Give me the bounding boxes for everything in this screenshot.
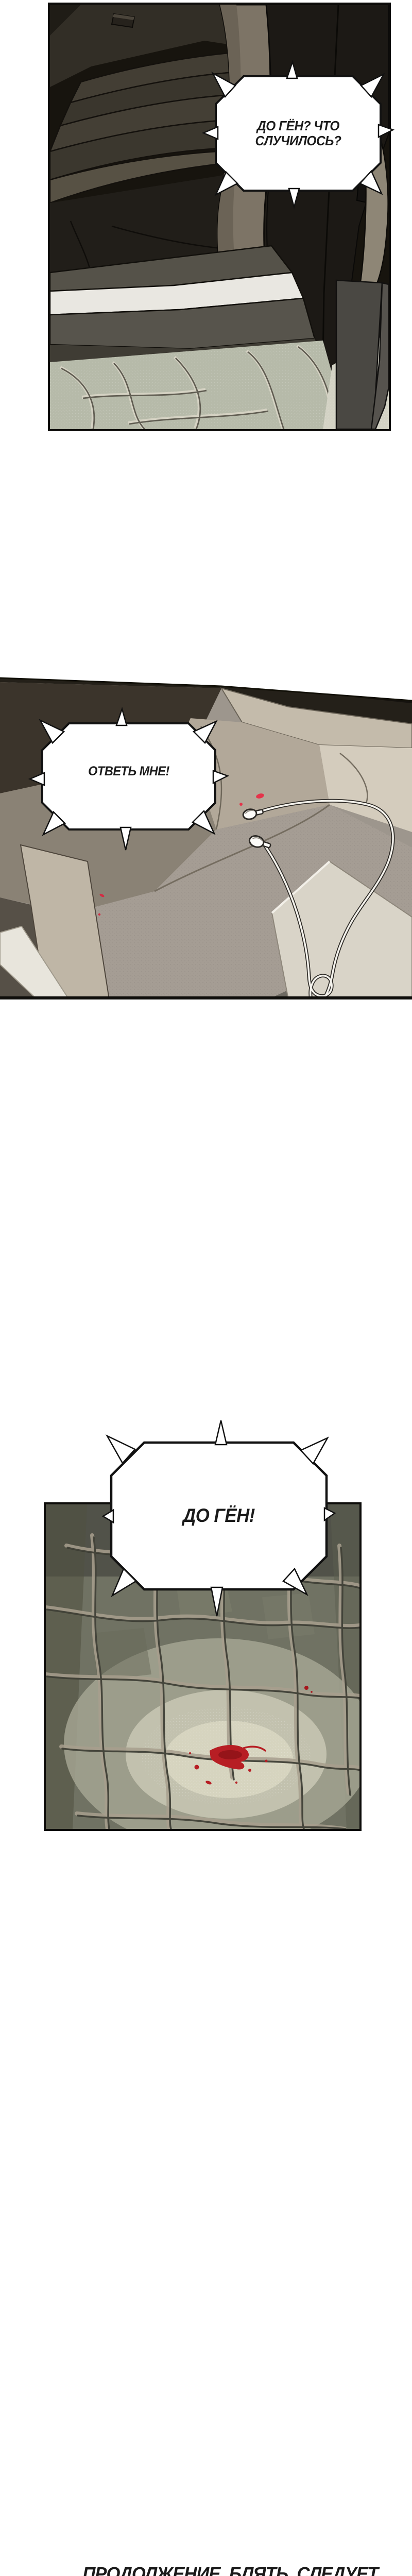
webtoon-page: ДО ГЁН? ЧТО СЛУЧИЛОСЬ?	[0, 0, 412, 2576]
speech-bubble-2-text: ОТВЕТЬ МНЕ!	[47, 720, 210, 823]
speech-line: ДО ГЁН? ЧТО	[257, 118, 339, 133]
speech-bubble-3-text: ДО ГЁН!	[118, 1443, 320, 1589]
speech-line: ДО ГЁН!	[183, 1505, 255, 1527]
caption: ПРОДОЛЖЕНИЕ, БЛЯТЬ, СЛЕДУЕТ...	[0, 2563, 412, 2576]
speech-bubble-3: ДО ГЁН!	[103, 1414, 335, 1620]
speech-line: СЛУЧИЛОСЬ?	[255, 133, 341, 148]
speech-bubble-1: ДО ГЁН? ЧТО СЛУЧИЛОСЬ?	[203, 61, 394, 210]
speech-bubble-1-text: ДО ГЁН? ЧТО СЛУЧИЛОСЬ?	[221, 76, 376, 191]
speech-line: ОТВЕТЬ МНЕ!	[88, 765, 169, 779]
caption-text: ПРОДОЛЖЕНИЕ, БЛЯТЬ, СЛЕДУЕТ...	[83, 2563, 391, 2576]
speech-bubble-2: ОТВЕТЬ МНЕ!	[30, 705, 228, 857]
